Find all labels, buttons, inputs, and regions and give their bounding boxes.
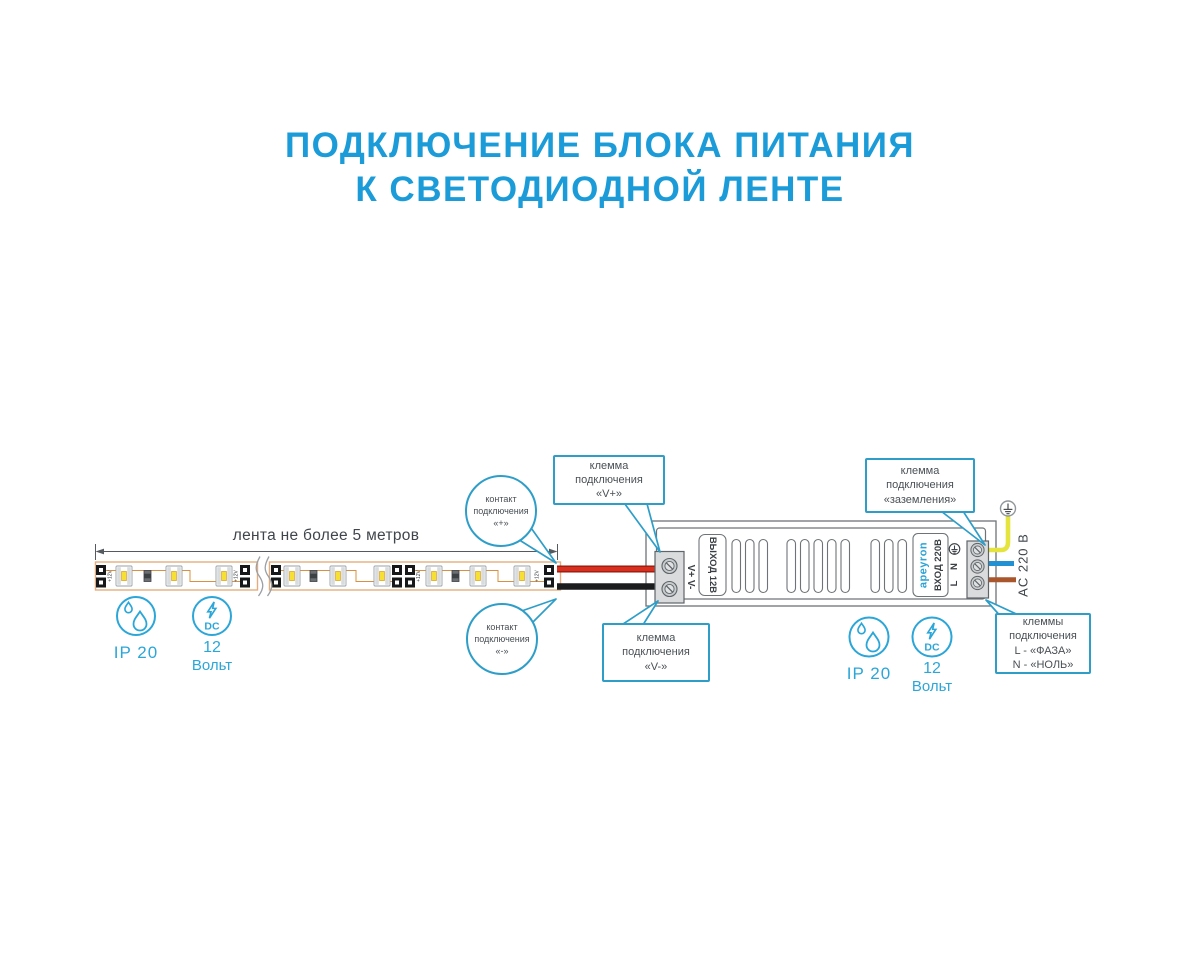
water-drops-icon — [867, 633, 880, 652]
callout-line: подключения — [867, 478, 973, 492]
callout-line: клеммы — [997, 615, 1089, 629]
led-strip: +12V +12V +12V +12V — [96, 557, 561, 597]
psu-input-terminal-block — [967, 541, 989, 598]
water-drops-icon — [134, 612, 147, 631]
power-supply: V+ V- ВЫХОД 12В apeyron ВХОД 220В N L — [646, 521, 996, 606]
voltage-label-left: 12 Вольт — [177, 639, 247, 675]
callout-line: подключения — [468, 633, 536, 645]
strip-pad-voltage-label: +12V — [108, 569, 114, 581]
callout-line: клемма — [555, 459, 663, 473]
voltage-value: 12 — [177, 639, 247, 657]
lightning-dc-icon — [928, 623, 936, 639]
ac-voltage-label: AC 220 В — [1016, 533, 1031, 597]
dc-label-left: DC — [204, 621, 220, 633]
psu-terminal-l-label: L — [949, 580, 960, 586]
dimension-line — [96, 544, 558, 560]
callout-line: подключения — [997, 629, 1089, 643]
callout-contact-minus: контакт подключения «-» — [466, 603, 538, 675]
callout-terminal-ground: клемма подключения «заземления» — [865, 458, 975, 513]
ip-rating-badge-left — [117, 597, 155, 635]
psu-output-terminal-block — [655, 552, 684, 604]
callout-line: «V-» — [604, 660, 708, 674]
callout-terminal-v-plus: клемма подключения «V+» — [553, 455, 665, 505]
callout-line: контакт — [467, 493, 535, 505]
ip-rating-label-left: IP 20 — [96, 643, 176, 663]
callout-line: контакт — [468, 621, 536, 633]
psu-terminal-n-label: N — [949, 563, 960, 570]
callout-line: «заземления» — [867, 493, 973, 507]
diagram-canvas: ПОДКЛЮЧЕНИЕ БЛОКА ПИТАНИЯ К СВЕТОДИОДНОЙ… — [0, 0, 1200, 960]
callout-line: подключения — [604, 645, 708, 659]
callout-line: клемма — [867, 464, 973, 478]
brand-label: apeyron — [918, 542, 930, 588]
callout-terminals-l-n: клеммы подключения L - «ФАЗА» N - «НОЛЬ» — [995, 613, 1091, 674]
callout-line: «-» — [468, 645, 536, 657]
psu-output-terminal-labels: V+ V- — [685, 565, 696, 590]
callout-line: подключения — [467, 505, 535, 517]
callout-line: L - «ФАЗА» — [997, 644, 1089, 658]
strip-pad-voltage-label: +12V — [535, 569, 541, 581]
dc-wires — [557, 569, 658, 587]
callout-line: «V+» — [555, 487, 663, 501]
callout-line: «+» — [467, 517, 535, 529]
earth-ground-icon — [1001, 501, 1016, 516]
voltage-label-right: 12 Вольт — [897, 660, 967, 696]
strip-length-label: лента не более 5 метров — [226, 527, 426, 545]
psu-input-label: ВХОД 220В — [933, 539, 944, 591]
ip-rating-badge-right — [850, 618, 889, 657]
dc-label-right: DC — [924, 642, 940, 654]
earth-ground-icon — [949, 544, 960, 555]
callout-contact-plus: контакт подключения «+» — [465, 475, 537, 547]
callout-line: подключения — [555, 473, 663, 487]
callout-line: клемма — [604, 631, 708, 645]
lightning-dc-icon — [208, 602, 216, 618]
callout-line: N - «НОЛЬ» — [997, 658, 1089, 672]
voltage-value: 12 — [897, 660, 967, 678]
strip-pad-voltage-label: +12V — [234, 569, 240, 581]
psu-output-label: ВЫХОД 12В — [707, 537, 718, 593]
strip-pad-voltage-label: +12V — [416, 569, 422, 581]
voltage-unit: Вольт — [177, 657, 247, 675]
voltage-unit: Вольт — [897, 678, 967, 696]
callout-terminal-v-minus: клемма подключения «V-» — [602, 623, 710, 682]
